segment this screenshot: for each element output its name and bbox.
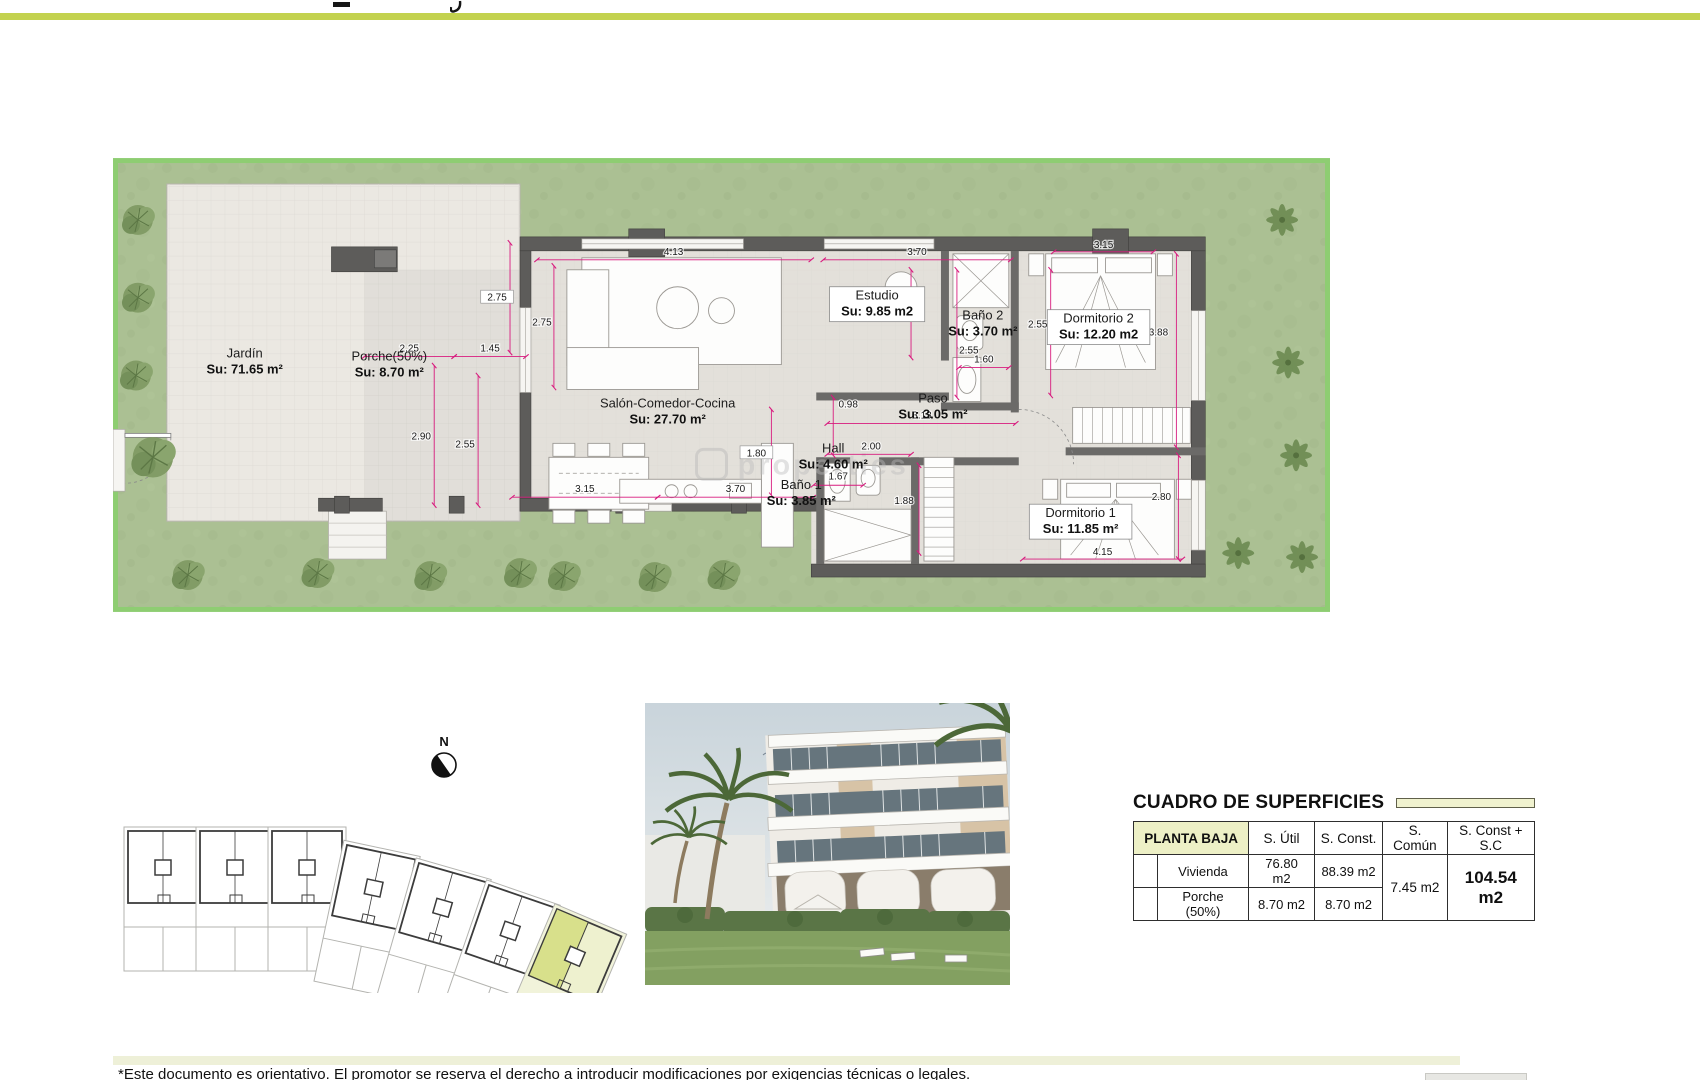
col-planta-baja: PLANTA BAJA [1134, 822, 1249, 855]
surfaces-table: PLANTA BAJA S. Útil S. Const. S. Común S… [1133, 821, 1535, 921]
jardin-paving [167, 184, 520, 521]
surfaces-header-row: PLANTA BAJA S. Útil S. Const. S. Común S… [1134, 822, 1535, 855]
dimension-label: 3.70 [907, 247, 927, 258]
porche-s-const: 8.70 m2 [1314, 888, 1383, 921]
s-const-sc-value: 104.54 m2 [1447, 855, 1534, 921]
disclaimer-text: *Este documento es orientativo. El promo… [118, 1066, 970, 1080]
col-s-const-sc: S. Const + S.C [1447, 822, 1534, 855]
room-area: Su: 12.20 m2 [1059, 327, 1138, 342]
room-name: Estudio [856, 288, 899, 303]
entrance-walkway [328, 511, 386, 559]
surfaces-title-bar [1396, 798, 1535, 808]
room-area: Su: 8.70 m² [355, 365, 425, 380]
table-row-vivienda: Vivienda 76.80 m2 88.39 m2 7.45 m2 104.5… [1134, 855, 1535, 888]
room-area: Su: 9.85 m2 [841, 304, 913, 319]
site-buildings-layer [124, 827, 627, 993]
site-plan: N [95, 733, 655, 993]
room-name: Salón-Comedor-Cocina [600, 395, 736, 410]
row-label-porche: Porche (50%) [1157, 888, 1249, 921]
brochure-page: properties 4.133.702.752.752.251.452.902… [0, 0, 1700, 1080]
dimension-label: 2.55 [455, 439, 475, 450]
col-s-util: S. Útil [1249, 822, 1315, 855]
bottom-right-remnant [1425, 1073, 1527, 1080]
dimension-label: 4.15 [1093, 547, 1113, 558]
photo-main-building [762, 725, 1010, 925]
room-area: Su: 3.70 m² [948, 324, 1018, 339]
dimension-label: 4.13 [664, 247, 684, 258]
room-name: Baño 2 [962, 308, 1003, 323]
room-name: Porche(50%) [352, 349, 428, 364]
photo-far-buildings [645, 835, 765, 915]
row-label-vivienda: Vivienda [1157, 855, 1249, 888]
building-render-photo [645, 703, 1010, 985]
room-area: Su: 3.05 m² [898, 406, 968, 421]
stub-cell [1134, 855, 1158, 888]
dimension-label: 2.80 [1152, 492, 1172, 503]
room-name: Baño 1 [781, 477, 822, 492]
room-area: Su: 71.65 m² [207, 362, 284, 377]
site-building [124, 827, 202, 971]
dimension-label: 3.15 [1094, 240, 1114, 251]
dimension-label: 3.70 [726, 484, 746, 495]
room-name: Dormitorio 1 [1045, 505, 1116, 520]
dimension-label: 3.88 [1149, 328, 1169, 339]
dimension-label: 3.15 [575, 484, 595, 495]
col-s-const: S. Const. [1314, 822, 1383, 855]
room-area: Su: 4.60 m² [799, 456, 869, 471]
dimension-label: 2.75 [487, 293, 507, 304]
dimension-label: 1.88 [894, 496, 914, 507]
room-name: Hall [822, 440, 844, 455]
north-arrow-icon: N [427, 734, 456, 782]
vivienda-s-util: 76.80 m2 [1249, 855, 1315, 888]
header-accent-line [0, 13, 1700, 20]
dimension-label: 1.80 [747, 448, 767, 459]
dimension-label: 1.60 [974, 355, 994, 366]
stub-cell [1134, 888, 1158, 921]
room-name: Jardín [227, 346, 263, 361]
room-area: Su: 11.85 m² [1043, 521, 1119, 536]
dimension-label: 2.55 [1028, 320, 1048, 331]
dimension-label: 2.75 [532, 318, 552, 329]
room-name: Paso [918, 390, 948, 405]
surfaces-block: CUADRO DE SUPERFICIES PLANTA BAJA S. Úti… [1133, 792, 1535, 921]
s-comun-value: 7.45 m2 [1383, 855, 1447, 921]
surfaces-title-row: CUADRO DE SUPERFICIES [1133, 792, 1535, 814]
dimension-label: 2.90 [412, 431, 432, 442]
col-s-comun: S. Común [1383, 822, 1447, 855]
surfaces-title: CUADRO DE SUPERFICIES [1133, 792, 1384, 814]
disclaimer-bar [113, 1056, 1460, 1065]
dimension-label: 0.98 [838, 399, 858, 410]
porche-s-util: 8.70 m2 [1249, 888, 1315, 921]
room-area: Su: 3.85 m² [767, 493, 837, 508]
dimension-label: 1.67 [829, 471, 849, 482]
logo-remnant-dash [333, 2, 350, 7]
photo-hedges [645, 907, 1010, 935]
site-building [196, 827, 274, 971]
dimension-label: 1.45 [480, 344, 500, 355]
room-area: Su: 27.70 m² [629, 411, 706, 426]
floor-plan: properties 4.133.702.752.752.251.452.902… [113, 158, 1330, 612]
north-label: N [439, 734, 448, 749]
vivienda-s-const: 88.39 m2 [1314, 855, 1383, 888]
room-name: Dormitorio 2 [1063, 311, 1134, 326]
dimension-label: 2.00 [861, 441, 881, 452]
